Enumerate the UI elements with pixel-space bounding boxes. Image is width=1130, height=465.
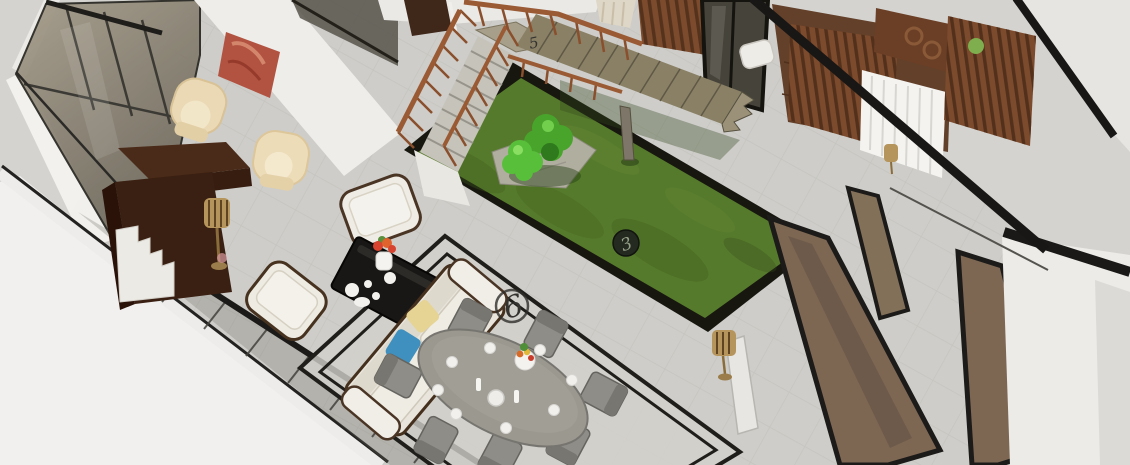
right-outer-wall xyxy=(1002,232,1130,465)
wall-shade-strip xyxy=(1095,280,1130,465)
marker-3: 3 xyxy=(613,230,639,256)
pink-accent xyxy=(217,253,227,263)
model-photo: 3 xyxy=(0,0,1130,465)
potted-plant xyxy=(968,38,984,54)
scene-canvas: 3 xyxy=(0,0,1130,465)
cake-stand xyxy=(488,390,504,406)
open-doorway xyxy=(404,0,452,36)
